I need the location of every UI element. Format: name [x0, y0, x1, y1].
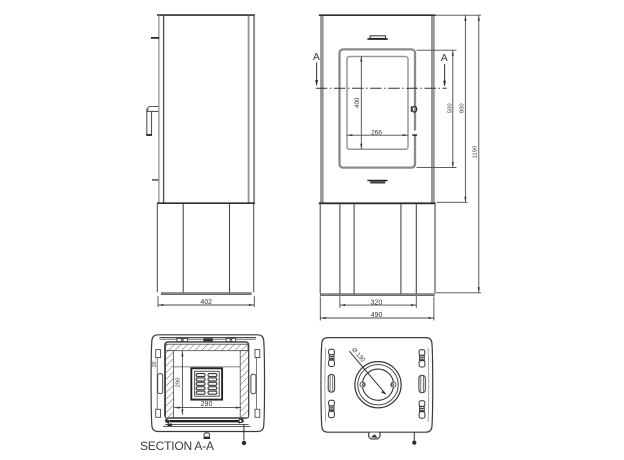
- svg-text:A: A: [313, 51, 320, 63]
- svg-text:SECTION A-A: SECTION A-A: [140, 439, 214, 453]
- svg-text:320: 320: [371, 299, 383, 306]
- svg-text:290: 290: [201, 401, 213, 408]
- svg-text:1190: 1190: [472, 145, 478, 158]
- svg-text:500: 500: [447, 103, 453, 114]
- svg-text:402: 402: [200, 299, 212, 306]
- svg-text:400: 400: [354, 97, 361, 108]
- svg-text:20: 20: [152, 361, 158, 367]
- svg-text:490: 490: [371, 312, 383, 319]
- svg-text:290: 290: [176, 377, 182, 388]
- svg-text:266: 266: [371, 130, 382, 137]
- svg-text:A: A: [441, 52, 448, 64]
- svg-text:800: 800: [460, 103, 466, 114]
